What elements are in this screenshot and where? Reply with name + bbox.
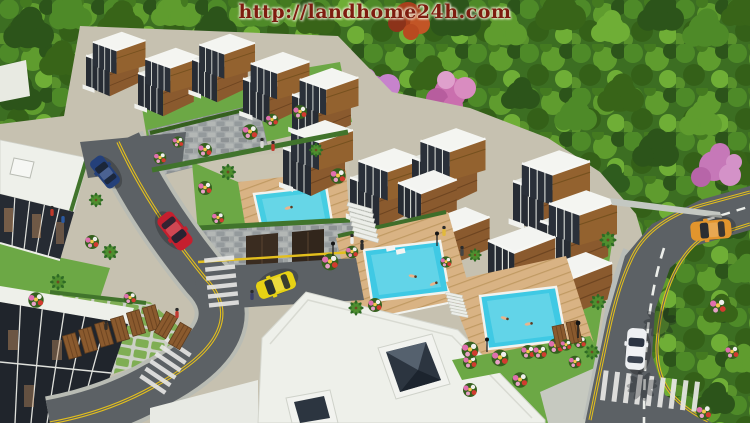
person: [260, 138, 263, 148]
flower-bed: [346, 246, 359, 259]
flower-bed: [293, 105, 307, 119]
flower-bed: [521, 345, 535, 359]
palm-tree: [599, 231, 616, 248]
flower-bed: [440, 256, 451, 267]
palm-tree: [89, 193, 103, 207]
person: [104, 320, 107, 330]
person: [250, 290, 253, 300]
person: [460, 246, 463, 256]
watermark-url: http://landhome24h.com: [0, 1, 750, 23]
flower-bed: [28, 292, 43, 307]
flower-bed: [322, 254, 339, 271]
person: [50, 206, 53, 216]
flower-bed: [462, 342, 479, 359]
flower-bed: [212, 212, 225, 225]
person: [175, 308, 178, 318]
palm-tree: [584, 344, 599, 359]
flower-bed: [512, 372, 527, 387]
flower-bed: [725, 345, 739, 359]
palm-tree: [50, 274, 66, 290]
flower-bed: [198, 181, 212, 195]
render-canvas: http://landhome24h.com: [0, 0, 750, 423]
flower-bed: [368, 298, 382, 312]
person: [61, 213, 64, 223]
palm-tree: [590, 294, 606, 310]
palm-tree: [309, 143, 323, 157]
flower-bed: [242, 124, 257, 139]
palm-tree: [348, 300, 363, 315]
flower-bed: [533, 345, 547, 359]
flower-bed: [124, 292, 137, 305]
person: [360, 240, 363, 250]
person: [271, 141, 274, 151]
scene-svg: [0, 0, 750, 423]
flower-bed: [463, 383, 477, 397]
flower-bed: [569, 356, 582, 369]
flower-bed: [560, 339, 571, 350]
palm-tree: [468, 248, 482, 262]
flower-bed: [492, 350, 509, 367]
flower-bed: [710, 298, 727, 315]
flower-bed: [330, 168, 345, 183]
flower-bed: [172, 136, 183, 147]
flower-bed: [266, 114, 279, 127]
palm-tree: [102, 244, 118, 260]
flower-bed: [85, 235, 99, 249]
palm-tree: [220, 164, 236, 180]
person: [442, 226, 445, 236]
person: [350, 234, 353, 244]
flower-bed: [696, 404, 711, 419]
flower-bed: [154, 152, 167, 165]
flower-bed: [198, 143, 212, 157]
